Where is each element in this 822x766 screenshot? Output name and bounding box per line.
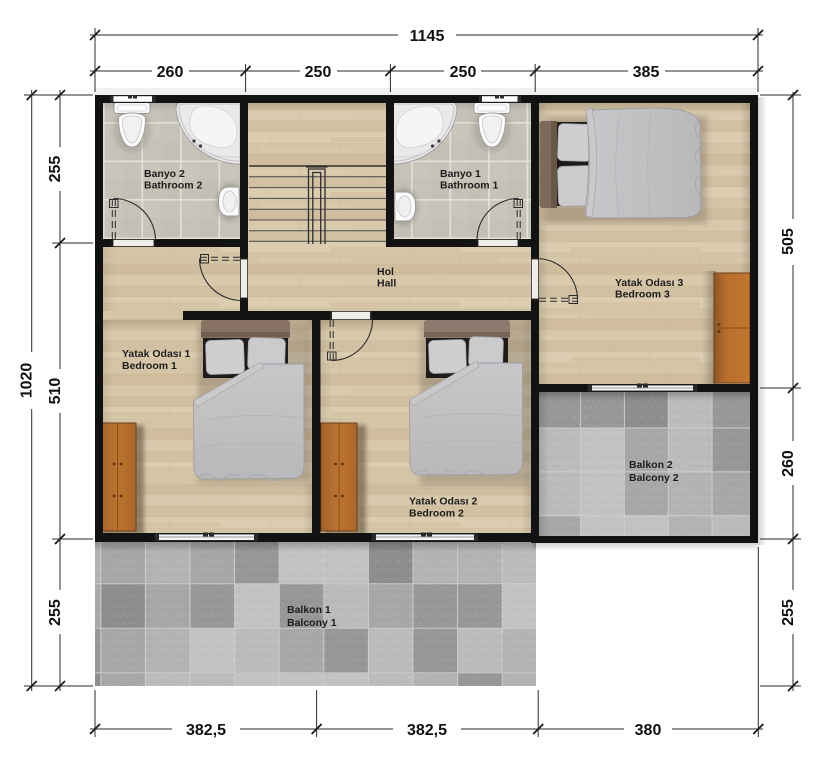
- svg-text:250: 250: [305, 64, 332, 81]
- svg-text:Balcony 2: Balcony 2: [629, 472, 679, 484]
- svg-text:Yatak Odası 3: Yatak Odası 3: [615, 277, 683, 289]
- svg-text:Bedroom 3: Bedroom 3: [615, 289, 670, 301]
- svg-text:Banyo 1: Banyo 1: [440, 168, 481, 180]
- svg-text:Balcony 1: Balcony 1: [287, 617, 337, 629]
- svg-text:255: 255: [780, 599, 797, 626]
- svg-text:255: 255: [47, 599, 64, 626]
- svg-text:Hol: Hol: [377, 266, 394, 278]
- svg-text:Bedroom 1: Bedroom 1: [122, 360, 177, 372]
- svg-text:Banyo 2: Banyo 2: [144, 168, 185, 180]
- svg-text:1020: 1020: [19, 363, 36, 399]
- svg-text:260: 260: [780, 450, 797, 477]
- svg-text:380: 380: [635, 722, 662, 739]
- svg-text:Yatak Odası 2: Yatak Odası 2: [409, 496, 477, 508]
- svg-text:Bathroom 2: Bathroom 2: [144, 180, 203, 192]
- svg-text:382,5: 382,5: [186, 722, 226, 739]
- svg-text:Balkon 1: Balkon 1: [287, 604, 331, 616]
- svg-text:510: 510: [47, 378, 64, 405]
- svg-text:385: 385: [633, 64, 660, 81]
- svg-text:382,5: 382,5: [407, 722, 447, 739]
- svg-text:Yatak Odası 1: Yatak Odası 1: [122, 348, 190, 360]
- svg-text:Bedroom 2: Bedroom 2: [409, 508, 464, 520]
- svg-text:255: 255: [47, 156, 64, 183]
- svg-text:Hall: Hall: [377, 278, 396, 290]
- svg-text:250: 250: [450, 64, 477, 81]
- svg-text:260: 260: [157, 64, 184, 81]
- svg-text:505: 505: [780, 228, 797, 255]
- svg-text:Balkon 2: Balkon 2: [629, 459, 673, 471]
- svg-text:Bathroom 1: Bathroom 1: [440, 180, 499, 192]
- svg-text:1145: 1145: [410, 28, 445, 45]
